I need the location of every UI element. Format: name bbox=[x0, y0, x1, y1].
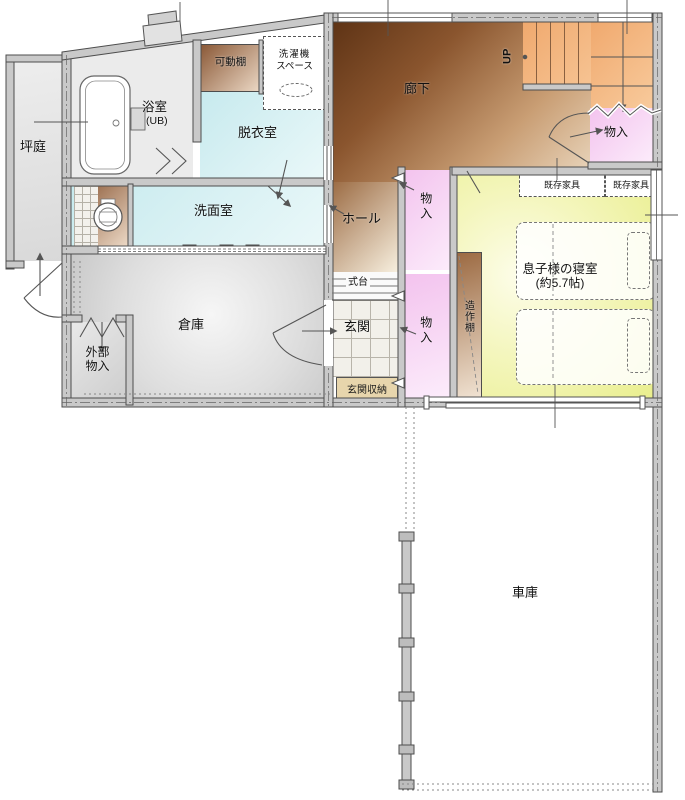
floor-plan: 玄関収納 既存家具 既存家具 bbox=[0, 0, 685, 800]
label-closet-stairs: 物入 bbox=[604, 126, 628, 140]
label-hall: ホール bbox=[342, 212, 381, 227]
vent-unit bbox=[143, 11, 182, 46]
label-bedroom: 息子様の寝室 bbox=[480, 262, 640, 276]
label-bathroom: 浴室 bbox=[142, 100, 167, 114]
label-garage: 車庫 bbox=[512, 586, 538, 601]
label-closet-entrance: 物入 bbox=[418, 316, 432, 346]
label-outdoor-storage-2: 物入 bbox=[69, 360, 126, 374]
label-washroom: 洗面室 bbox=[194, 204, 233, 219]
toilet bbox=[94, 199, 122, 231]
label-outdoor-storage-1: 外部 bbox=[69, 346, 126, 360]
walls-and-symbols-layer bbox=[0, 0, 685, 800]
label-entrance-step: 式台 bbox=[346, 277, 370, 289]
label-laundry-2: スペース bbox=[263, 62, 326, 73]
bathtub bbox=[80, 76, 145, 174]
label-builtin-shelf: 造作棚 bbox=[462, 300, 474, 333]
label-closet-hall: 物入 bbox=[418, 192, 432, 222]
label-courtyard: 坪庭 bbox=[20, 140, 46, 155]
label-corridor: 廊下 bbox=[404, 82, 430, 97]
washer-pan bbox=[280, 84, 312, 97]
label-laundry-1: 洗濯機 bbox=[263, 50, 326, 61]
dotted-boundary-lines bbox=[74, 261, 653, 790]
label-bathroom-sub: (UB) bbox=[146, 115, 168, 127]
label-dressing-room: 脱衣室 bbox=[238, 126, 277, 141]
label-entrance: 玄関 bbox=[344, 320, 370, 335]
stairs-lines bbox=[523, 22, 653, 112]
label-movable-shelf: 可動棚 bbox=[199, 56, 262, 68]
label-bedroom-size: (約5.7帖) bbox=[480, 277, 640, 291]
label-stairs-up: UP bbox=[501, 49, 514, 64]
label-storehouse: 倉庫 bbox=[178, 318, 204, 333]
